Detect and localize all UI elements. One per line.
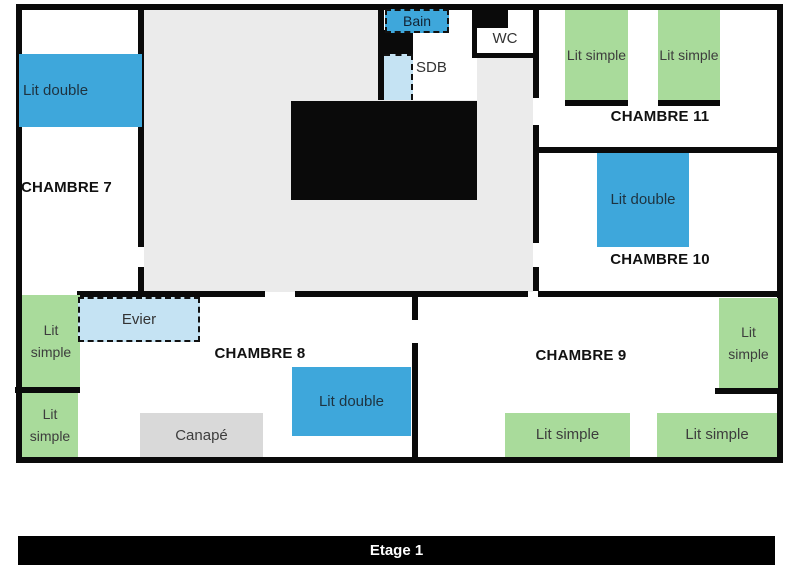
bed-label: Lit double (319, 390, 384, 414)
bathroom-label: SDB (416, 59, 447, 76)
double-bed: Lit double (597, 153, 689, 247)
sofa-label: Canapé (175, 427, 228, 444)
bed-label: Lit simple (22, 403, 78, 448)
wall-block (472, 7, 508, 28)
corridor-area (477, 58, 533, 292)
single-bed: Lit simple (22, 393, 78, 457)
bed-label: Lit simple (719, 321, 778, 366)
bed-label: Lit simple (659, 44, 718, 66)
double-bed: Lit double (292, 367, 411, 436)
single-bed: Lit simple (505, 413, 630, 457)
bed-headboard (715, 388, 778, 394)
wall (538, 291, 783, 297)
bathtub-label: Bain (403, 13, 431, 29)
shower (384, 54, 413, 100)
sink: Evier (78, 297, 200, 342)
single-bed: Lit simple (719, 298, 778, 388)
floor-title-bar: Etage 1 (18, 536, 775, 565)
floor-title: Etage 1 (370, 542, 423, 559)
wall (533, 10, 539, 98)
sink-label: Evier (122, 311, 156, 328)
stairs-block (291, 101, 477, 200)
single-bed: Lit simple (22, 295, 80, 387)
single-bed: Lit simple (658, 10, 720, 100)
room-label-chambre-7: CHAMBRE 7 (21, 179, 112, 196)
bed-label: Lit double (23, 79, 88, 103)
wc-label: WC (477, 30, 533, 47)
wall (412, 343, 418, 458)
bed-label: Lit double (610, 188, 675, 212)
wall (16, 457, 783, 463)
double-bed: Lit double (19, 54, 142, 127)
bed-headboard (565, 100, 628, 106)
single-bed: Lit simple (657, 413, 777, 457)
bed-label: Lit simple (567, 44, 626, 66)
bed-headboard (658, 100, 720, 106)
sofa: Canapé (140, 413, 263, 457)
bed-label: Lit simple (22, 319, 80, 364)
bed-label: Lit simple (536, 423, 599, 447)
wall (533, 267, 539, 291)
room-label-chambre-10: CHAMBRE 10 (590, 251, 730, 268)
bathtub: Bain (385, 9, 449, 33)
single-bed: Lit simple (565, 10, 628, 100)
wall (138, 267, 144, 293)
bed-label: Lit simple (685, 423, 748, 447)
wall-block (384, 30, 413, 54)
wall (533, 125, 539, 243)
wall (138, 10, 144, 247)
room-label-chambre-8: CHAMBRE 8 (190, 345, 330, 362)
wall (472, 53, 533, 58)
room-label-chambre-11: CHAMBRE 11 (590, 108, 730, 125)
wall (777, 4, 783, 463)
floor-plan: Lit double CHAMBRE 7 Bain SDB WC Lit sim… (0, 0, 800, 565)
room-label-chambre-9: CHAMBRE 9 (511, 347, 651, 364)
wall (412, 297, 418, 320)
